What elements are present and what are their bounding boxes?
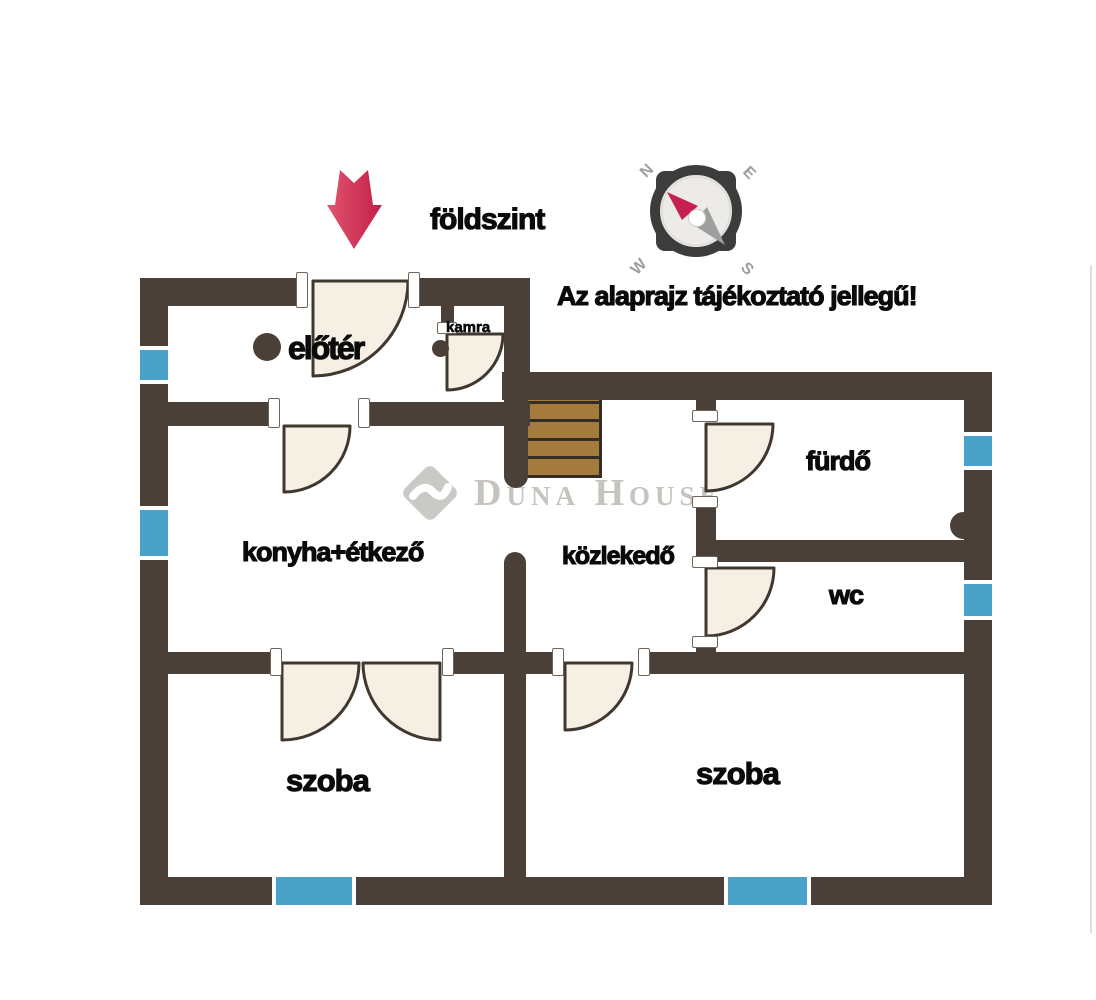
wall — [358, 402, 530, 426]
kamra-door — [447, 334, 503, 390]
wall — [502, 372, 964, 400]
szoba-right-door — [565, 663, 632, 730]
wall — [716, 540, 964, 562]
window — [964, 432, 992, 470]
wall — [140, 877, 272, 905]
szoba-left-double-door-leaf — [363, 663, 440, 740]
floor-plan-page: földszint N E W S Az alaprajz tájékoztat… — [0, 0, 1096, 1000]
szoba-left-double-door-leaf — [282, 663, 359, 740]
wall — [444, 652, 562, 674]
door-jamb — [692, 556, 718, 568]
door-jamb — [638, 648, 650, 676]
wall — [140, 278, 168, 346]
wall — [140, 402, 280, 426]
wall — [964, 372, 992, 432]
wall-end-dot — [253, 333, 281, 361]
furdo-door — [706, 424, 773, 491]
wall — [140, 652, 282, 674]
window — [272, 877, 356, 905]
wall — [504, 552, 526, 902]
wall — [140, 560, 168, 905]
room-label-szoba-right: szoba — [696, 758, 779, 789]
window — [964, 580, 992, 620]
eloter-konyha-door — [284, 426, 350, 492]
floor-title: földszint — [430, 205, 544, 235]
window — [140, 506, 168, 560]
door-jamb — [270, 648, 282, 676]
compass-west-label: W — [628, 255, 651, 278]
room-label-konyha: konyha+étkező — [242, 539, 423, 566]
compass-icon: N E W S — [612, 148, 784, 280]
door-jamb — [268, 398, 280, 428]
door-jamb — [442, 648, 454, 676]
wall-end-dot — [432, 340, 449, 357]
window — [724, 877, 811, 905]
door-jamb — [358, 398, 370, 428]
window — [140, 346, 168, 384]
door-jamb — [692, 636, 718, 648]
door-jamb — [408, 272, 420, 308]
room-label-kamra: kamra — [446, 320, 490, 335]
wall — [356, 877, 724, 905]
door-jamb — [552, 648, 564, 676]
compass-north-label: N — [637, 161, 657, 181]
door-jamb — [692, 496, 718, 508]
room-label-kozlekedo: közlekedő — [562, 544, 674, 569]
entrance-arrow-icon — [320, 163, 390, 255]
compass-east-label: E — [739, 163, 759, 183]
door-jamb — [296, 272, 308, 308]
wall — [504, 278, 530, 374]
room-label-szoba-left: szoba — [286, 765, 369, 796]
door-jamb — [692, 410, 718, 422]
wall — [964, 470, 992, 580]
wc-door — [706, 568, 774, 636]
room-label-wc: wc — [829, 582, 863, 609]
room-label-furdo: fürdő — [806, 448, 870, 475]
wall — [640, 652, 992, 674]
disclaimer-text: Az alaprajz tájékoztató jellegű! — [557, 283, 917, 310]
room-label-eloter: előtér — [288, 332, 363, 364]
compass-south-label: S — [737, 259, 757, 279]
